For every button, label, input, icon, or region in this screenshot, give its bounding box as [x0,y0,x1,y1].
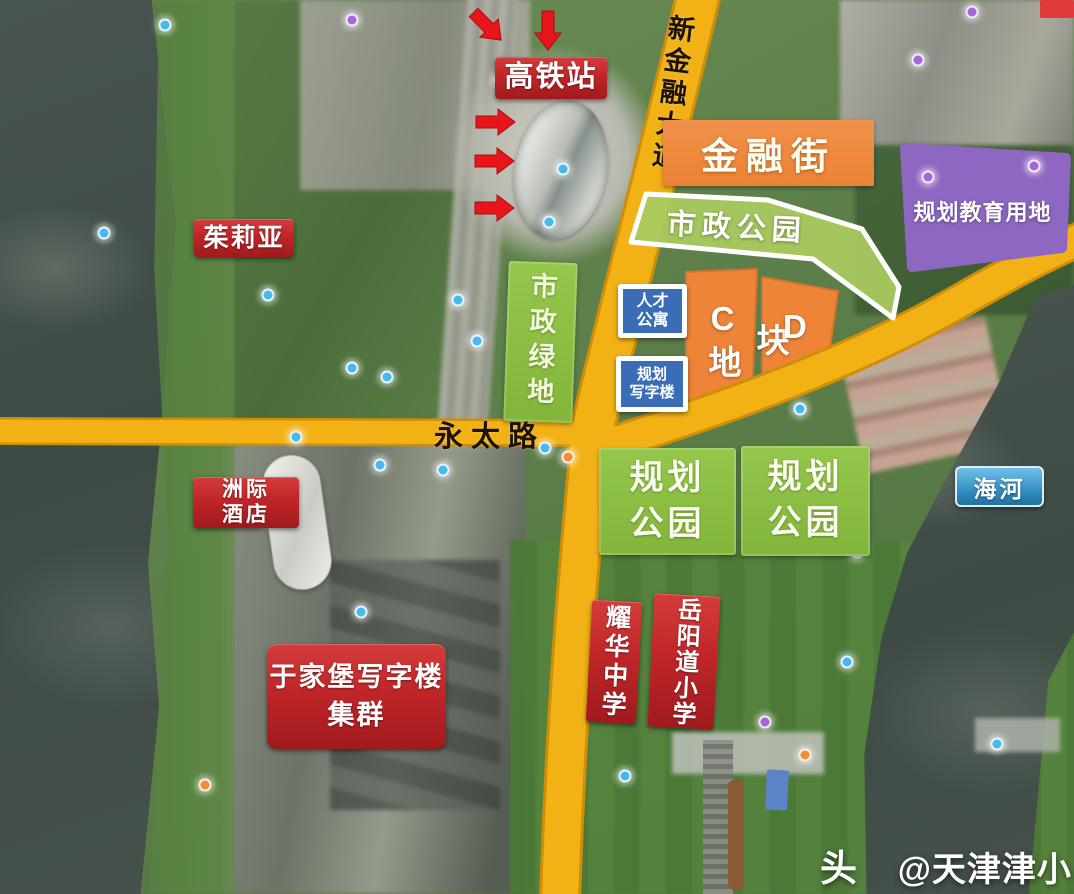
label-text: 岳阳道小学 [667,596,701,727]
label-juilliard: 茱莉亚 [194,219,294,257]
label-plot-c: C地块 [698,280,794,406]
label-line2: 集群 [328,697,386,735]
map-poi-icon [98,227,111,240]
map-poi-icon [374,459,387,472]
label-text: 耀华中学 [597,603,632,720]
label-line1: 规划 [768,455,844,501]
map-canvas: 新金融大道 永太路 高铁站 茱莉亚 金融街 规划教育用地 市政公园 市政绿地 人… [0,0,1074,894]
label-line1: 人才 [636,292,668,311]
label-line2: 公园 [630,502,706,548]
map-poi-icon [799,749,812,762]
map-poi-icon [966,6,979,19]
watermark-brand: 头条 [820,838,886,894]
label-text: 市政公园 [666,208,807,247]
label-line1: 于家堡写字楼 [270,659,444,697]
direction-arrow-icon [535,11,561,50]
label-high-speed-rail-station: 高铁站 [495,57,607,99]
direction-arrow-icon [476,109,515,135]
map-poi-icon [290,431,303,444]
label-line2: 写字楼 [629,384,674,402]
label-plot-d: D [783,308,807,346]
corner-red-label [1040,0,1074,18]
label-municipal-green-space: 市政绿地 [503,261,578,423]
label-talent-apartment: 人才 公寓 [618,284,687,338]
label-yaohua-middle-school: 耀华中学 [586,600,642,724]
label-line1: 洲际 [222,478,270,502]
map-poi-icon [452,294,465,307]
label-text: 高铁站 [504,61,597,94]
map-poi-icon [159,19,172,32]
map-poi-icon [346,14,359,27]
label-line1: 规划 [630,456,706,502]
map-poi-icon [922,171,935,184]
map-poi-icon [619,770,632,783]
map-poi-icon [355,606,368,619]
watermark: 头条 @天津津小团 [820,838,1074,894]
map-poi-icon [557,163,570,176]
arrow-layer [464,3,561,221]
map-poi-icon [1028,160,1041,173]
label-education-land: 规划教育用地 [900,195,1065,227]
map-poi-icon [794,403,807,416]
label-yueyangdao-primary-school: 岳阳道小学 [648,593,721,729]
label-line2: 公园 [768,501,844,547]
label-planned-park-east: 规划 公园 [741,446,870,556]
label-line2: 酒店 [222,503,270,527]
label-text: 市政绿地 [519,271,563,412]
label-hai-river: 海河 [955,466,1044,507]
direction-arrow-icon [464,3,510,49]
map-poi-icon [346,362,359,375]
label-line1: 规划 [637,366,667,384]
label-text: 海河 [974,470,1026,504]
label-intercontinental-hotel: 洲际 酒店 [193,477,299,528]
map-poi-icon [471,335,484,348]
map-poi-icon [543,216,556,229]
map-poi-icon [437,464,450,477]
direction-arrow-icon [475,148,514,174]
label-text: 规划教育用地 [913,200,1051,225]
label-financial-street: 金融街 [663,120,874,186]
label-line2: 公寓 [636,311,668,330]
label-planned-office: 规划 写字楼 [616,356,688,412]
direction-arrow-icon [475,195,514,221]
map-poi-icon [562,451,575,464]
map-poi-icon [991,738,1004,751]
map-poi-icon [262,289,275,302]
map-poi-icon [912,54,925,67]
label-yujiapu-office-cluster: 于家堡写字楼 集群 [267,644,446,749]
map-poi-icon [841,656,854,669]
map-poi-icon [381,371,394,384]
label-text: 金融街 [701,126,836,180]
map-poi-icon [199,779,212,792]
map-poi-icon [759,716,772,729]
label-planned-park-west: 规划 公园 [599,448,736,555]
watermark-handle: @天津津小团 [898,842,1074,894]
label-text: 茱莉亚 [203,224,284,253]
